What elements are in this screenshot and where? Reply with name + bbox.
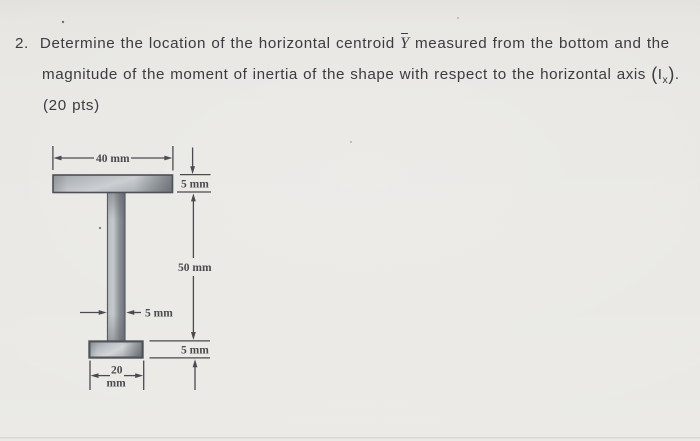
svg-text:50 mm: 50 mm xyxy=(178,262,212,274)
svg-text:5 mm: 5 mm xyxy=(181,179,209,191)
svg-text:5 mm: 5 mm xyxy=(181,345,209,357)
svg-text:40 mm: 40 mm xyxy=(96,153,130,165)
svg-text:20: 20 xyxy=(111,365,123,377)
svg-text:mm: mm xyxy=(107,378,127,390)
svg-text:5 mm: 5 mm xyxy=(145,308,173,320)
